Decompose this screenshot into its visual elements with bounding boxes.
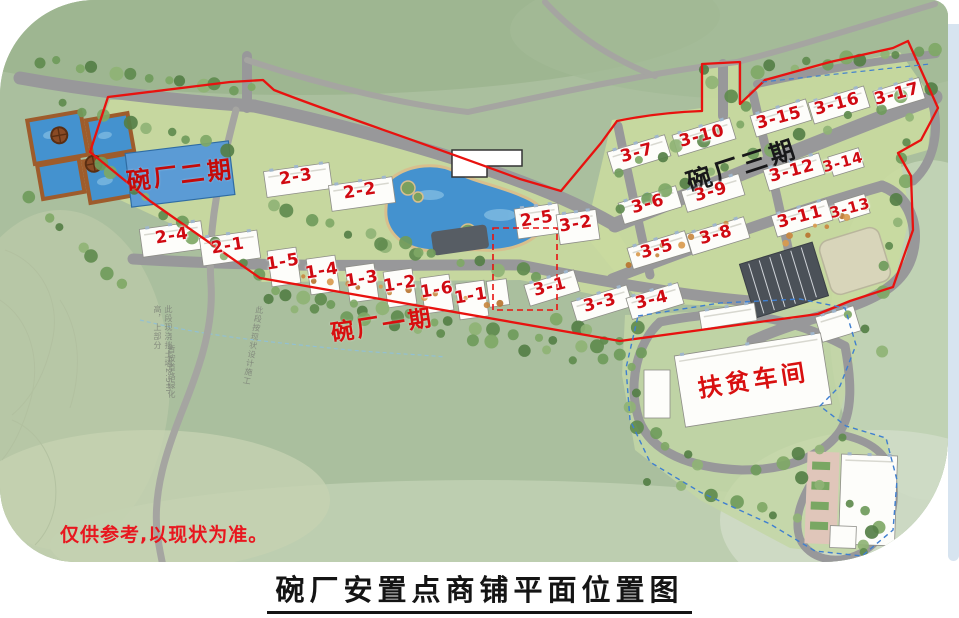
- tree: [366, 228, 377, 239]
- tree: [344, 231, 352, 239]
- site-plan-graphics: [0, 0, 948, 562]
- tree: [542, 345, 551, 354]
- tree: [793, 513, 802, 522]
- tree: [569, 356, 577, 364]
- tree: [279, 204, 293, 218]
- tree: [678, 242, 685, 249]
- tree: [508, 329, 519, 340]
- tree: [815, 480, 825, 490]
- tree: [399, 236, 412, 249]
- tree: [876, 346, 888, 358]
- tree: [306, 214, 318, 226]
- tree: [751, 65, 765, 79]
- tree: [517, 262, 530, 275]
- tree: [84, 249, 98, 263]
- tree: [443, 316, 453, 326]
- tree: [905, 113, 914, 122]
- tree: [168, 128, 176, 136]
- tree: [296, 291, 310, 305]
- tree: [200, 135, 212, 147]
- tree: [802, 57, 810, 65]
- tree: [165, 76, 173, 84]
- tree: [85, 61, 97, 73]
- tree: [414, 248, 424, 258]
- title-bar: 碗厂安置点商铺平面位置图: [0, 567, 959, 614]
- tree: [100, 267, 113, 280]
- tree: [518, 345, 530, 357]
- tree: [616, 204, 625, 213]
- tree: [632, 389, 641, 398]
- tree: [763, 59, 775, 71]
- tree: [823, 126, 832, 135]
- tree: [548, 336, 557, 345]
- tree: [786, 232, 793, 239]
- tree: [268, 200, 280, 212]
- page-edge-strip: [948, 24, 959, 561]
- tree: [885, 242, 893, 250]
- tree: [815, 445, 825, 455]
- tree: [310, 304, 320, 314]
- tree: [757, 502, 768, 513]
- page-title: 碗厂安置点商铺平面位置图: [267, 567, 691, 614]
- tree: [724, 90, 738, 104]
- tree: [861, 325, 870, 334]
- tree: [374, 237, 388, 251]
- tree: [614, 168, 623, 177]
- tree: [326, 300, 335, 309]
- tree: [805, 233, 810, 238]
- tree: [688, 234, 694, 240]
- tree: [264, 294, 274, 304]
- tree: [436, 329, 445, 338]
- tree: [736, 121, 744, 129]
- tree: [59, 99, 67, 107]
- tree: [684, 450, 692, 458]
- tree: [865, 525, 879, 539]
- tree: [181, 135, 190, 144]
- tree: [174, 75, 185, 86]
- tree: [52, 56, 60, 64]
- tree: [890, 193, 903, 206]
- tree: [705, 76, 718, 89]
- tree: [350, 300, 358, 308]
- tree: [496, 300, 503, 307]
- tree: [795, 471, 808, 484]
- tree: [140, 123, 151, 134]
- tree: [486, 322, 500, 336]
- tree: [879, 261, 889, 271]
- tree: [699, 65, 709, 75]
- tree: [658, 152, 668, 162]
- tree: [291, 305, 299, 313]
- tree: [427, 249, 436, 258]
- tree: [636, 347, 647, 358]
- tree: [792, 447, 805, 460]
- tree: [839, 434, 847, 442]
- tree: [117, 279, 127, 289]
- tree: [35, 58, 46, 69]
- tree: [928, 43, 941, 56]
- tree: [626, 262, 632, 268]
- tree: [643, 478, 651, 486]
- tree: [271, 286, 280, 295]
- tree: [782, 240, 789, 247]
- tree: [315, 293, 327, 305]
- building: [830, 526, 857, 549]
- tree: [77, 108, 86, 117]
- tree: [891, 51, 899, 59]
- greening-note: 暂按道路绿化: [166, 345, 177, 405]
- tree: [598, 354, 609, 365]
- tree: [45, 213, 54, 222]
- tree: [110, 67, 124, 81]
- tree: [813, 224, 817, 228]
- disclaimer-text: 仅供参考,以现状为准。: [60, 520, 268, 547]
- tree: [467, 334, 479, 346]
- tree: [457, 259, 465, 267]
- tree: [628, 363, 636, 371]
- tree: [631, 321, 645, 335]
- tree: [279, 289, 291, 301]
- tree: [692, 459, 703, 470]
- tree: [860, 506, 870, 516]
- tree: [76, 64, 85, 73]
- tree: [624, 401, 636, 413]
- page: 碗厂二期 碗厂三期 碗厂一期 扶贫车间 2-1 2-2 2-3 2-4 2-5 …: [0, 0, 959, 618]
- tree: [825, 224, 830, 229]
- tree: [575, 340, 587, 352]
- tree: [751, 465, 762, 476]
- tree: [248, 83, 256, 91]
- tree: [484, 335, 498, 349]
- tree: [535, 334, 543, 342]
- tree: [475, 256, 486, 267]
- tree: [145, 74, 154, 83]
- tree: [650, 427, 662, 439]
- tree: [325, 218, 334, 227]
- tree: [23, 191, 36, 204]
- tree: [661, 442, 670, 451]
- tree: [777, 456, 791, 470]
- tree: [614, 349, 626, 361]
- tree: [846, 500, 854, 508]
- tree: [55, 223, 63, 231]
- tree: [550, 313, 563, 326]
- tree: [124, 68, 136, 80]
- tree: [893, 218, 903, 228]
- tree: [124, 116, 138, 130]
- tree: [469, 322, 482, 335]
- tree: [229, 86, 239, 96]
- building: [644, 370, 670, 418]
- tree: [630, 420, 644, 434]
- tree: [769, 511, 777, 519]
- site-plan-map: 碗厂二期 碗厂三期 碗厂一期 扶贫车间 2-1 2-2 2-3 2-4 2-5 …: [0, 0, 948, 562]
